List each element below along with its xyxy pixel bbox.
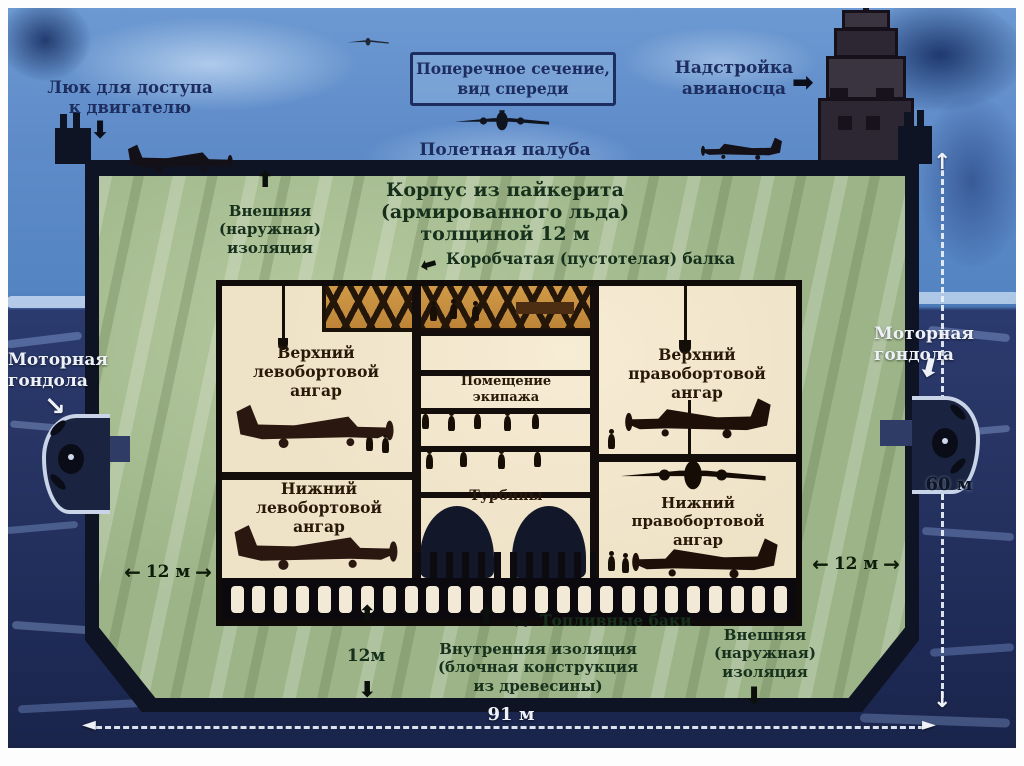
height-dimension-label: 60 м <box>914 474 984 496</box>
outer-insulation-bottom-label: Внешняя (наружная) изоляция <box>690 626 840 681</box>
wave-streak <box>6 521 78 534</box>
person-figure <box>430 306 437 321</box>
outer-insulation-top-label: Внешняя (наружная) изоляция <box>194 202 346 257</box>
person-figure <box>450 304 457 319</box>
fuel-tank <box>687 586 700 613</box>
flying-aircraft-small <box>346 34 390 50</box>
fuel-tank <box>383 586 396 613</box>
width-dimension-line <box>96 726 924 729</box>
fuel-tank <box>709 586 722 613</box>
engine-hatch-label: Люк для доступа к двигателю <box>20 78 240 118</box>
propeller-shaft-right <box>880 420 914 446</box>
wave-streak <box>18 699 148 714</box>
page-frame <box>0 0 1024 8</box>
island-cap <box>842 10 890 30</box>
deck-edge-block-right <box>898 126 932 164</box>
bollard <box>917 110 924 126</box>
fuel-tank <box>622 586 635 613</box>
engine-pod-right-label: Моторная гондола <box>874 324 1022 365</box>
right-arrow-icon: → <box>883 552 900 576</box>
person-figure <box>608 556 615 571</box>
hoist-cable <box>282 286 285 340</box>
up-arrow-icon: ⬆ <box>256 170 274 192</box>
bottom-thickness-label: 12м <box>334 646 398 667</box>
person-figure <box>448 416 455 431</box>
bollard <box>904 112 911 128</box>
wave-streak <box>922 527 1014 541</box>
turbine-railing <box>414 552 596 578</box>
down-arrow-icon: ↓ <box>933 690 951 712</box>
island-porthole <box>838 116 852 130</box>
person-figure <box>460 452 467 467</box>
fuel-tank <box>448 586 461 613</box>
lower-starboard-hangar-label: Нижний правобортовой ангар <box>598 494 798 549</box>
propeller-hub-highlight <box>68 454 74 460</box>
turbines-label: Турбины <box>416 488 596 505</box>
page-frame <box>0 0 8 766</box>
hull-material-label: Корпус из пайкерита (армированного льда)… <box>332 180 678 246</box>
aircraft-upper-port <box>228 398 404 452</box>
fuel-tank <box>557 586 570 613</box>
down-arrow-icon: ⬇ <box>744 684 764 708</box>
right-arrow-icon: ➡ <box>792 70 814 96</box>
propeller-hub-highlight <box>942 438 948 444</box>
width-dimension-label: 91 м <box>466 704 556 726</box>
deck-edge-block-left <box>55 128 91 164</box>
person-figure <box>422 414 429 429</box>
person-figure <box>504 416 511 431</box>
fuel-tank <box>318 586 331 613</box>
left-arrow-icon: ← <box>124 560 141 584</box>
fuel-tank <box>405 586 418 613</box>
page-frame <box>1016 0 1024 766</box>
person-figure <box>534 452 541 467</box>
hoist-cable <box>684 286 687 344</box>
mess-table <box>516 302 574 314</box>
diagram-canvas: ↑ ↓ 60 м ◄ ► 91 м ← 12 м → ← 12 м → ⬆ 12… <box>0 0 1024 766</box>
left-arrowhead-icon: ◄ <box>82 716 96 734</box>
island-upper-drum <box>834 28 898 58</box>
fuel-tank <box>339 586 352 613</box>
section-title-box: Поперечное сечение, вид спереди <box>410 52 616 106</box>
crew-quarters-label: Помещение экипажа <box>416 374 596 406</box>
person-figure <box>532 414 539 429</box>
superstructure-label: Надстройка авианосца <box>664 58 804 99</box>
aircraft-on-deck-right <box>698 134 784 162</box>
scene-background: ↑ ↓ 60 м ◄ ► 91 м ← 12 м → ← 12 м → ⬆ 12… <box>0 0 1024 766</box>
fuel-tank <box>752 586 765 613</box>
upper-port-hangar-label: Верхний левобортовой ангар <box>226 344 406 401</box>
island-fitting <box>876 88 894 100</box>
dark-sky-patch <box>0 0 90 80</box>
flying-aircraft-front <box>452 106 552 136</box>
up-arrow-icon: ⬆ <box>476 604 496 628</box>
aircraft-on-deck-left <box>122 140 240 176</box>
engine-pod-left-label: Моторная гондола <box>8 350 168 391</box>
fuel-tank <box>774 586 787 613</box>
wall-thickness-right-value: 12 м <box>834 554 878 574</box>
box-beam-label: Коробчатая (пустотелая) балка <box>446 250 786 269</box>
fuel-tank <box>252 586 265 613</box>
fuel-tank <box>578 586 591 613</box>
island-porthole <box>866 116 880 130</box>
fuel-tank <box>731 586 744 613</box>
dark-sky-patch <box>920 96 1024 266</box>
inner-compartment <box>216 280 802 626</box>
upper-starboard-hangar-label: Верхний правобортовой ангар <box>602 346 792 403</box>
flight-deck-label: Полетная палуба <box>390 140 620 161</box>
fuel-tank <box>535 586 548 613</box>
right-arrowhead-icon: ► <box>922 716 936 734</box>
fuel-tank <box>231 586 244 613</box>
page-frame <box>0 748 1024 766</box>
person-figure <box>498 454 505 469</box>
island-fitting <box>830 88 848 100</box>
right-arrow-icon: → <box>195 560 212 584</box>
aircraft-hoisted-front <box>616 456 770 494</box>
wall-thickness-left: ← 12 м → <box>104 560 232 584</box>
lower-port-hangar-label: Нижний левобортовой ангар <box>228 480 410 537</box>
wall-thickness-left-value: 12 м <box>146 562 190 582</box>
deck-level <box>414 330 599 336</box>
left-arrow-icon: ← <box>812 552 829 576</box>
person-figure <box>472 306 479 321</box>
fuel-tank <box>296 586 309 613</box>
fuel-tank <box>644 586 657 613</box>
down-arrow-icon: ⬇ <box>90 118 110 142</box>
deck-level <box>414 446 599 452</box>
person-figure <box>426 454 433 469</box>
up-arrow-icon: ⬆ <box>358 604 376 626</box>
person-figure <box>474 414 481 429</box>
down-right-arrow-icon: ↘ <box>44 394 66 420</box>
fuel-tank <box>600 586 613 613</box>
inner-insulation-label: Внутренняя изоляция (блочная конструкция… <box>408 640 668 695</box>
fuel-tank <box>274 586 287 613</box>
up-arrow-icon: ↑ <box>933 152 951 174</box>
fuel-tank <box>665 586 678 613</box>
wall-thickness-right: ← 12 м → <box>792 552 920 576</box>
down-arrow-icon: ⬇ <box>358 680 376 702</box>
down-arrow-icon: ⬇ <box>915 354 942 385</box>
fuel-tank <box>426 586 439 613</box>
wave-streak <box>6 331 82 348</box>
